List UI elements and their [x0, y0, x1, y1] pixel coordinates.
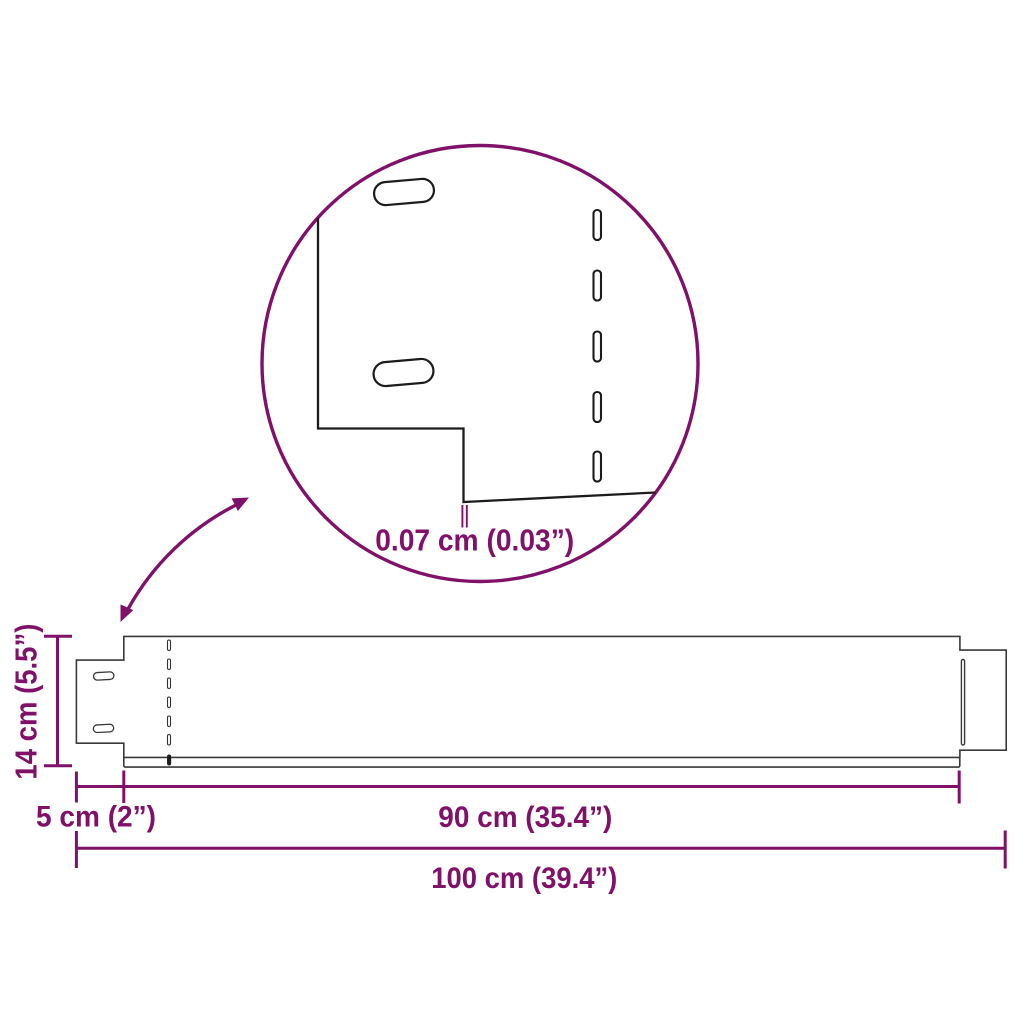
- svg-text:5 cm (2”): 5 cm (2”): [36, 801, 156, 834]
- svg-text:14 cm (5.5”): 14 cm (5.5”): [9, 624, 43, 780]
- svg-text:100 cm (39.4”): 100 cm (39.4”): [431, 862, 617, 895]
- svg-text:90 cm (35.4”): 90 cm (35.4”): [438, 801, 612, 834]
- svg-text:0.07 cm (0.03”): 0.07 cm (0.03”): [375, 524, 574, 558]
